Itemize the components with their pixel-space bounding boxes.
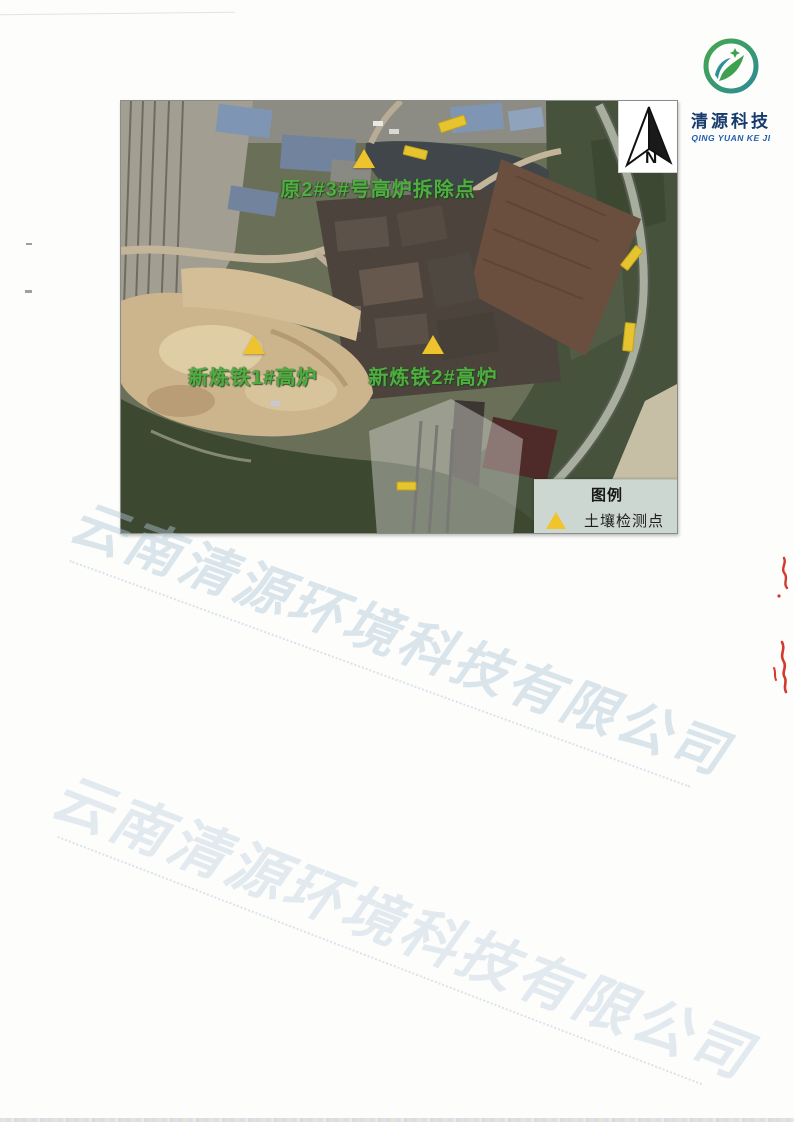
soil-point-demolished-furnace [353, 149, 375, 168]
red-pen-marks [770, 640, 792, 705]
legend-item: 土壤检测点 [546, 510, 678, 531]
watermark-microtext-line [69, 560, 690, 788]
soil-point-label: 原2#3#号高炉拆除点 [280, 173, 476, 202]
map-legend: 图例 土壤检测点 [534, 479, 678, 534]
soil-point-marker-icon [243, 335, 265, 354]
satellite-image [121, 101, 678, 534]
edge-speck [26, 243, 32, 245]
edge-speck [25, 290, 32, 293]
legend-triangle-icon [546, 512, 566, 529]
watermark-microtext-line [57, 836, 702, 1085]
scanned-page: 清源科技 QING YUAN KE JI [0, 0, 794, 1122]
legend-item-label: 土壤检测点 [584, 510, 664, 531]
soil-point-label: 新炼铁2#高炉 [368, 361, 497, 390]
company-logo: 清源科技 QING YUAN KE JI [674, 36, 788, 143]
company-name-cn: 清源科技 [674, 107, 788, 132]
scan-artifact-line [0, 12, 235, 15]
soil-point-marker-icon [422, 335, 444, 354]
company-name-en: QING YUAN KE JI [674, 133, 788, 143]
north-compass: N [618, 101, 678, 173]
logo-mark-icon [698, 36, 764, 100]
compass-label: N [645, 148, 657, 168]
soil-point-marker-icon [353, 149, 375, 168]
site-map: N 原2#3#号高炉拆除点 新炼铁1#高炉 新炼铁2#高炉 图例 土壤检测点 [120, 100, 678, 534]
legend-title: 图例 [534, 484, 678, 505]
soil-point-new-furnace-2 [422, 335, 444, 354]
red-pen-marks [774, 556, 792, 609]
soil-point-label: 新炼铁1#高炉 [188, 361, 317, 390]
soil-point-new-furnace-1 [243, 335, 265, 354]
scanner-noise-strip [0, 1118, 794, 1122]
company-watermark: 云南清源环境科技有限公司 [42, 750, 767, 1095]
